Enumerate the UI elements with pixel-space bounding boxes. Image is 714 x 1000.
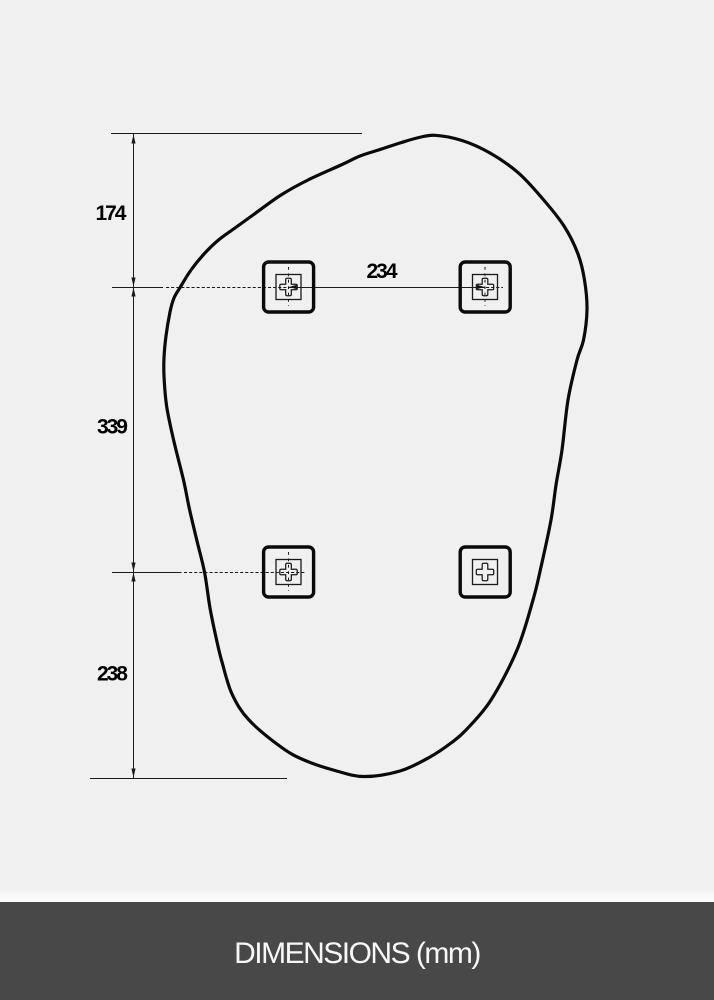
svg-text:234: 234 <box>366 260 397 283</box>
svg-text:DIMENSIONS (mm): DIMENSIONS (mm) <box>234 937 480 970</box>
svg-text:339: 339 <box>97 416 127 439</box>
svg-text:238: 238 <box>97 663 128 686</box>
svg-text:174: 174 <box>95 202 126 225</box>
